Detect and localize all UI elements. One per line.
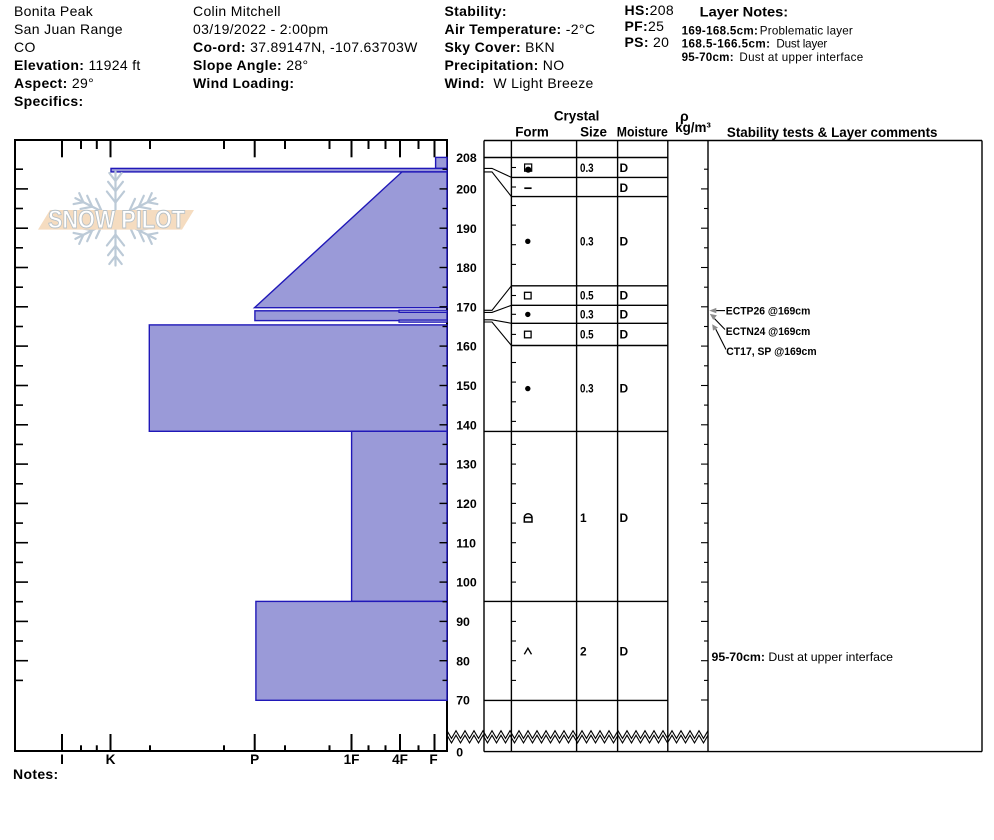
svg-text:169-168.5cm:: 169-168.5cm: (682, 24, 758, 37)
svg-text:80: 80 (456, 654, 470, 668)
svg-text:D: D (620, 289, 629, 303)
svg-text:0.3: 0.3 (580, 161, 594, 175)
svg-text:70: 70 (456, 694, 470, 708)
svg-text:Size: Size (580, 125, 607, 140)
svg-text:0.3: 0.3 (580, 382, 594, 396)
svg-text:110: 110 (456, 536, 476, 550)
svg-text:Form: Form (515, 125, 549, 140)
svg-text:D: D (620, 511, 629, 525)
svg-text:95-70cm: Dust at upper interfa: 95-70cm: Dust at upper interface (712, 650, 894, 664)
svg-text:D: D (620, 181, 629, 195)
svg-text:0.5: 0.5 (580, 328, 594, 342)
svg-text:kg/m³: kg/m³ (675, 120, 711, 135)
svg-text:0: 0 (456, 745, 463, 759)
svg-text:D: D (620, 328, 629, 342)
svg-text:95-70cm:: 95-70cm: (682, 51, 734, 64)
svg-text:180: 180 (456, 261, 477, 275)
svg-text:Problematic layer: Problematic layer (760, 24, 853, 37)
svg-text:D: D (620, 382, 629, 396)
svg-text:ECTP26 @169cm: ECTP26 @169cm (726, 305, 811, 317)
svg-text:CT17, SP @169cm: CT17, SP @169cm (726, 346, 816, 358)
svg-text:Dust layer: Dust layer (776, 38, 827, 51)
svg-text:0.5: 0.5 (580, 289, 594, 303)
svg-text:Stability tests & Layer commen: Stability tests & Layer comments (727, 124, 938, 140)
svg-text:1: 1 (580, 511, 587, 525)
svg-text:130: 130 (456, 458, 477, 472)
svg-text:160: 160 (456, 340, 477, 354)
svg-text:168.5-166.5cm:: 168.5-166.5cm: (682, 38, 770, 51)
svg-text:208: 208 (456, 151, 477, 165)
svg-text:120: 120 (456, 497, 477, 511)
svg-text:0.3: 0.3 (580, 307, 594, 321)
svg-text:170: 170 (456, 300, 477, 314)
svg-text:F: F (429, 752, 437, 767)
svg-text:ECTN24 @169cm: ECTN24 @169cm (726, 326, 811, 338)
svg-text:Dust at upper interface: Dust at upper interface (739, 51, 863, 64)
svg-text:SNOW PILOT: SNOW PILOT (48, 206, 185, 234)
svg-text:D: D (620, 307, 629, 321)
svg-text:150: 150 (456, 379, 477, 393)
svg-text:140: 140 (456, 418, 477, 432)
svg-text:K: K (106, 752, 116, 767)
svg-text:P: P (250, 752, 259, 767)
svg-text:D: D (620, 645, 629, 659)
svg-text:Layer Notes:: Layer Notes: (700, 5, 788, 21)
svg-text:I: I (60, 752, 64, 767)
svg-text:200: 200 (456, 183, 477, 197)
svg-text:D: D (620, 161, 629, 175)
svg-text:100: 100 (456, 576, 477, 590)
svg-text:190: 190 (456, 222, 477, 236)
svg-text:D: D (620, 234, 629, 248)
svg-text:Moisture: Moisture (617, 125, 668, 140)
svg-text:0.3: 0.3 (580, 234, 594, 248)
svg-text:Crystal: Crystal (554, 109, 599, 124)
svg-text:90: 90 (456, 615, 470, 629)
svg-text:1F: 1F (344, 752, 360, 767)
svg-text:2: 2 (580, 645, 587, 659)
svg-text:4F: 4F (392, 752, 408, 767)
